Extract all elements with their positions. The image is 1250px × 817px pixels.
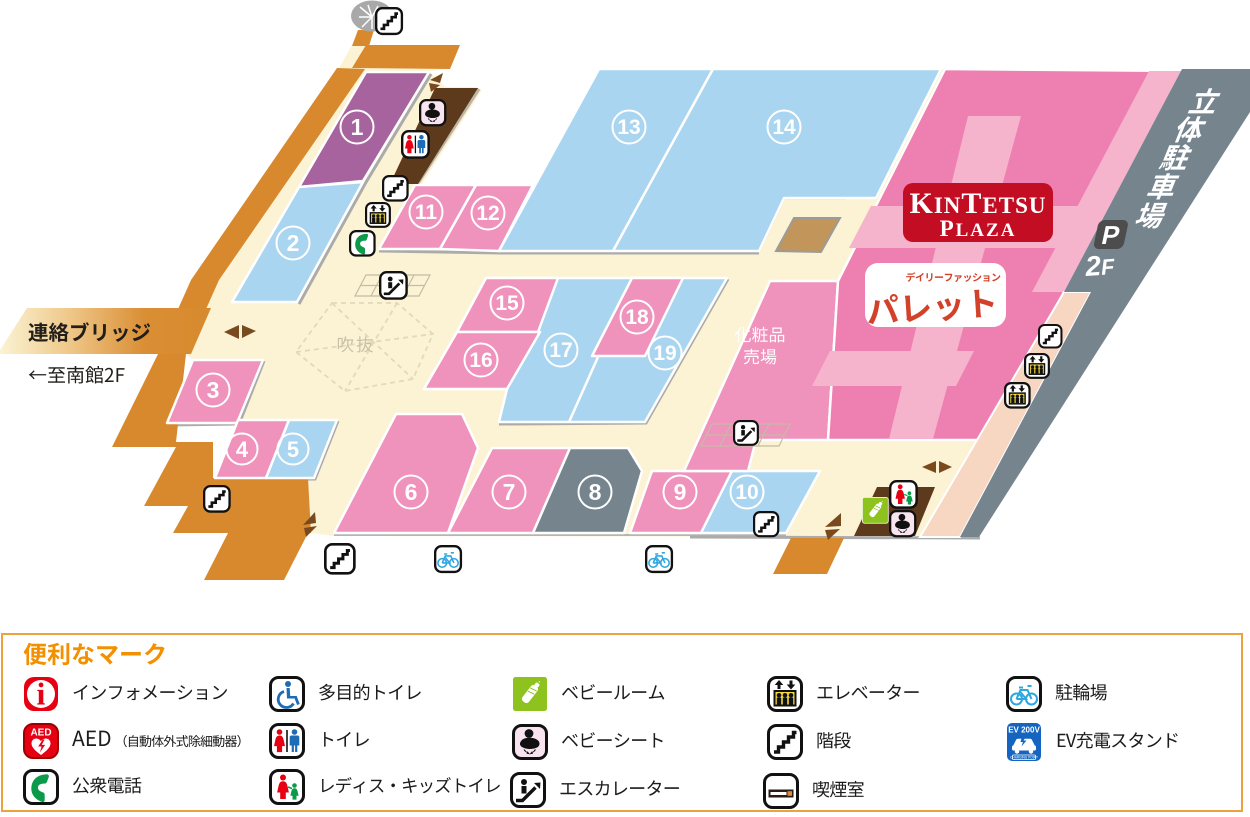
svg-text:4: 4 xyxy=(236,437,249,462)
svg-text:PLAZA: PLAZA xyxy=(940,216,1017,241)
svg-text:1: 1 xyxy=(351,114,364,140)
svg-text:15: 15 xyxy=(495,292,519,315)
svg-text:17: 17 xyxy=(549,339,572,362)
svg-text:3: 3 xyxy=(207,377,220,403)
svg-text:8: 8 xyxy=(589,479,602,505)
svg-text:18: 18 xyxy=(625,306,649,329)
svg-text:10: 10 xyxy=(735,481,758,504)
svg-text:7: 7 xyxy=(503,479,516,505)
svg-text:9: 9 xyxy=(674,479,687,505)
svg-text:11: 11 xyxy=(415,201,438,224)
svg-text:2: 2 xyxy=(287,230,300,256)
svg-text:13: 13 xyxy=(617,116,640,139)
svg-text:5: 5 xyxy=(287,437,299,462)
svg-text:12: 12 xyxy=(476,202,499,225)
svg-text:19: 19 xyxy=(653,342,676,365)
svg-text:16: 16 xyxy=(469,349,492,372)
svg-text:2F: 2F xyxy=(1083,249,1116,282)
svg-text:6: 6 xyxy=(405,479,418,505)
svg-text:14: 14 xyxy=(772,116,796,139)
